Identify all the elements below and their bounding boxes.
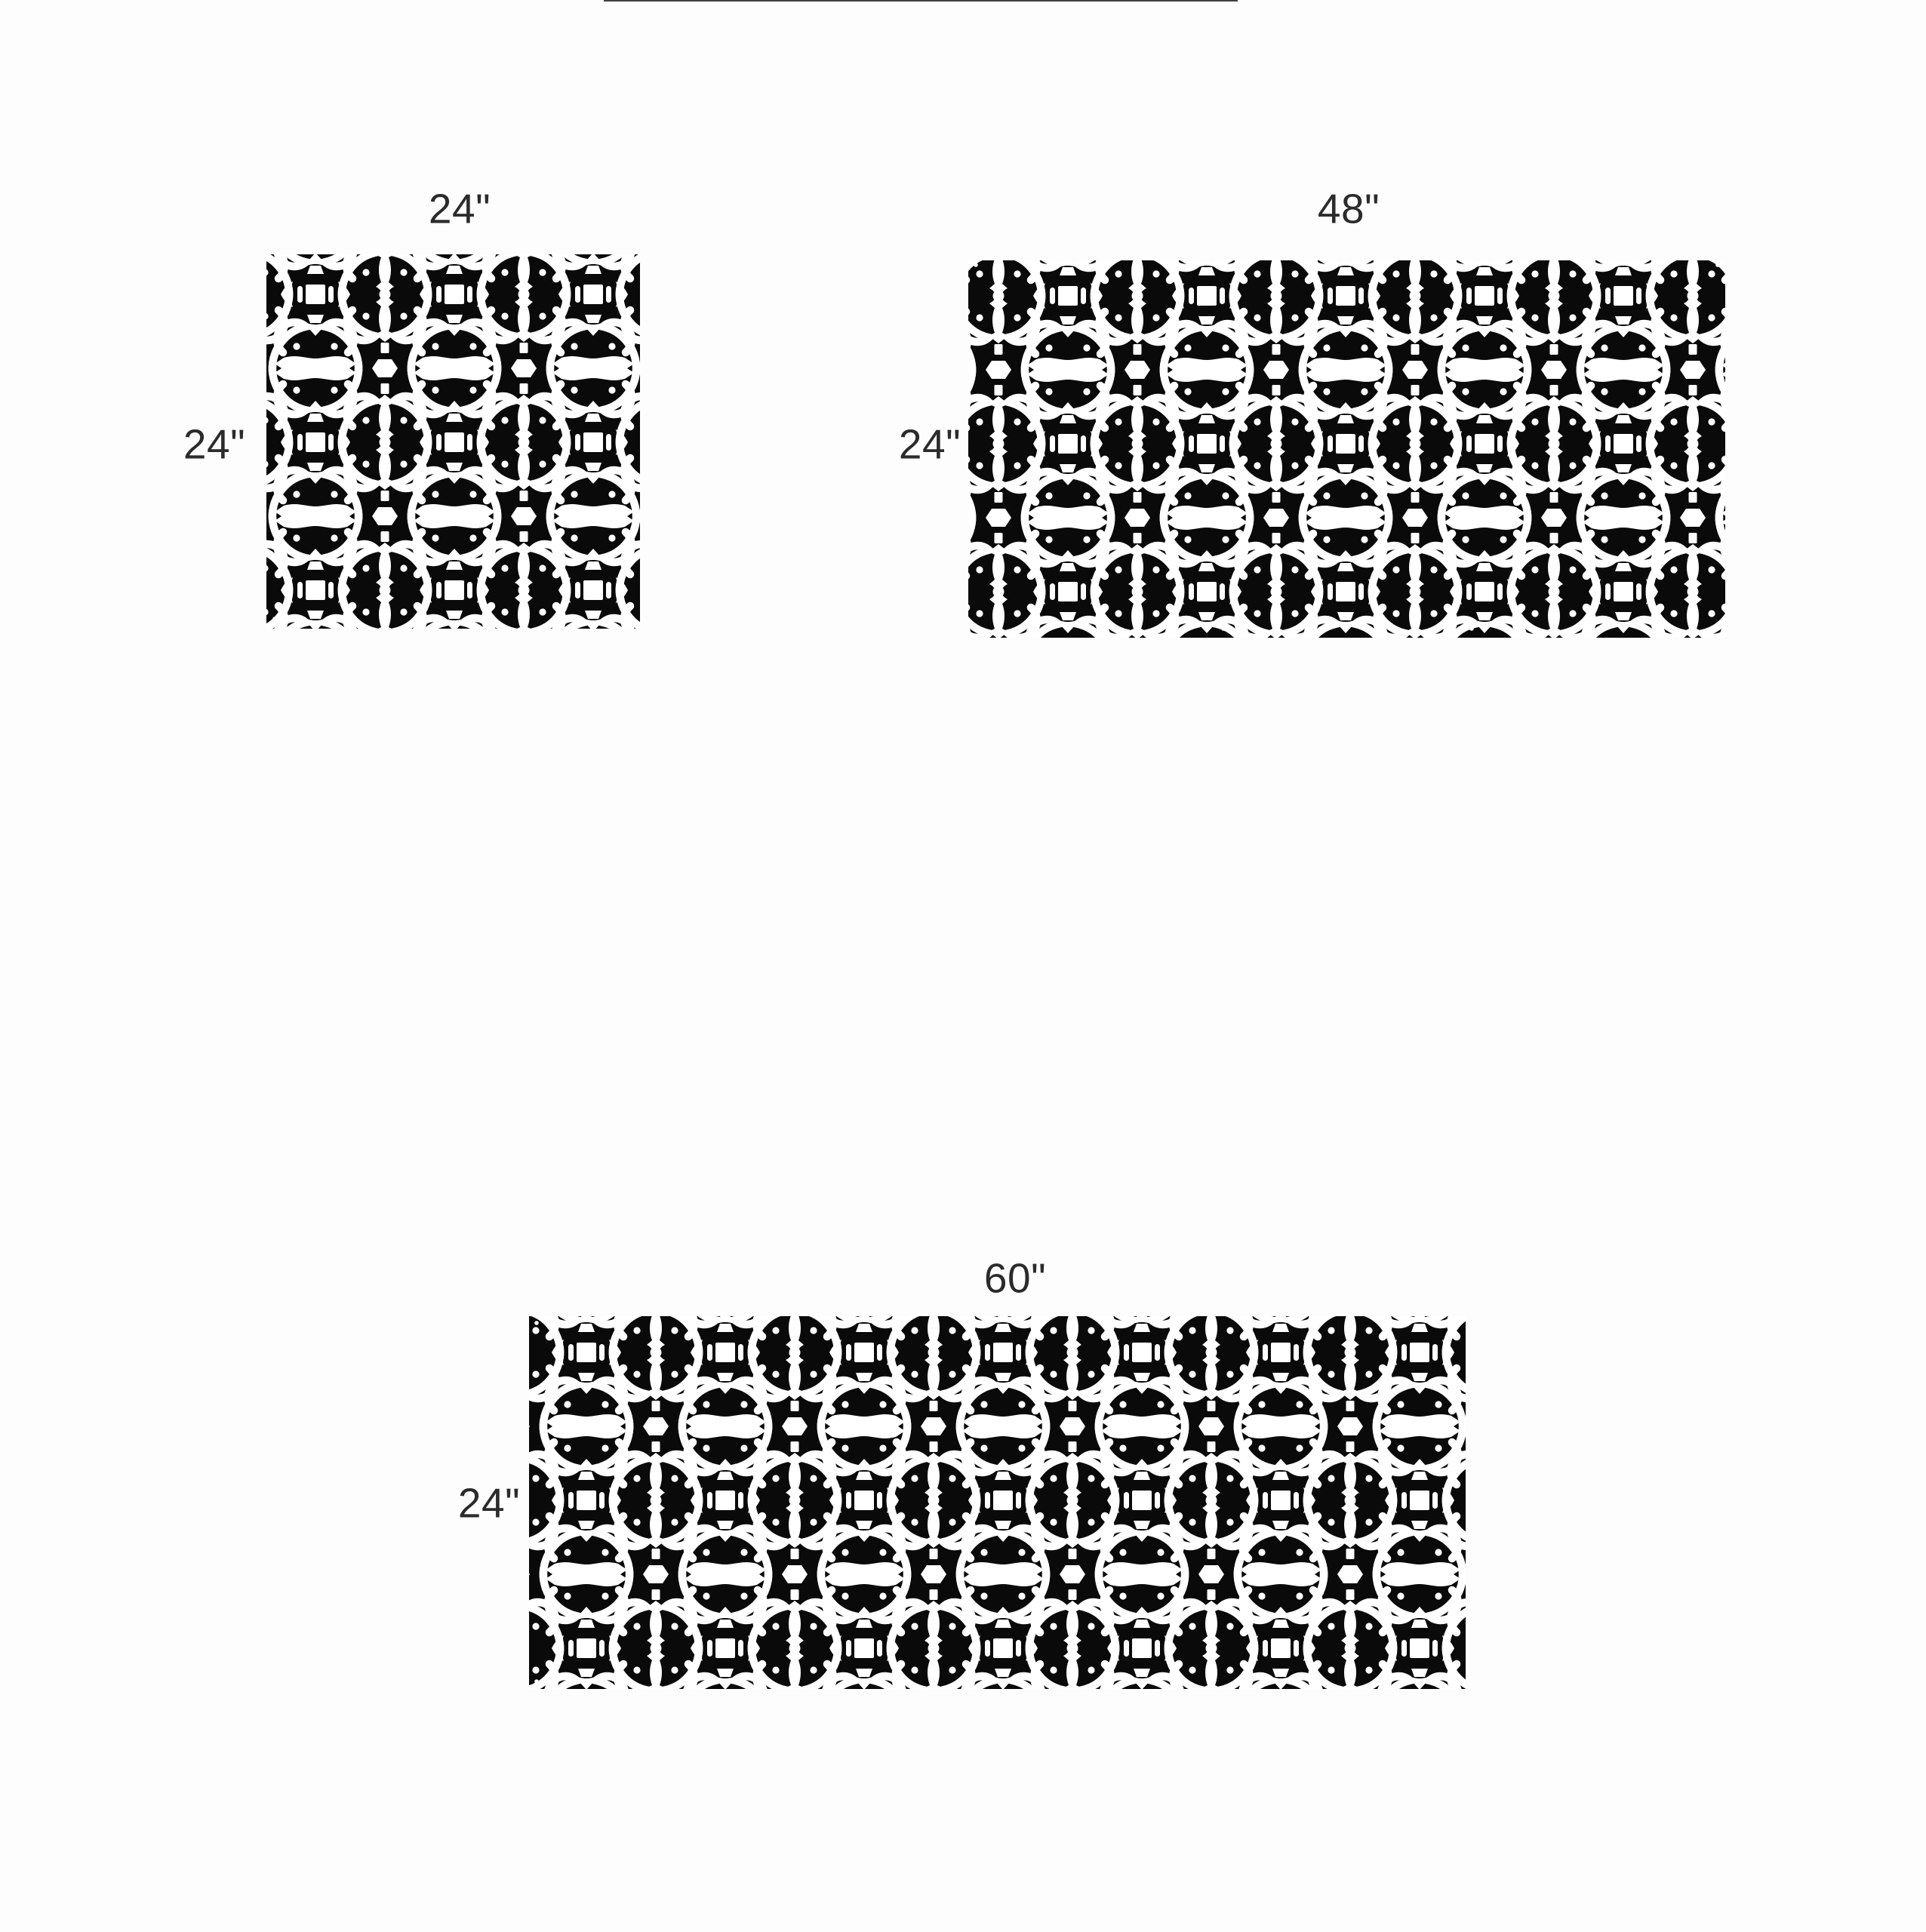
panel-24x24-height-label: 24" (183, 424, 245, 466)
mounting-hole (1158, 1321, 1162, 1325)
mounting-hole (629, 263, 634, 267)
mounting-hole (1469, 626, 1474, 631)
mounting-hole (845, 1679, 850, 1684)
mounting-hole (1469, 263, 1474, 267)
mounting-hole (1221, 626, 1226, 631)
mounting-hole (1456, 1321, 1460, 1325)
mounting-hole (845, 1321, 850, 1325)
panel-48x24-width-label: 48" (1318, 189, 1380, 230)
panel-60x24-width-label: 60" (984, 1258, 1046, 1300)
panel-graphics (0, 0, 1926, 1932)
mounting-hole (1715, 263, 1720, 267)
mounting-hole (1158, 1679, 1162, 1684)
panel-24x24-width-label: 24" (429, 189, 491, 230)
panel-60x24-height-label: 24" (458, 1483, 520, 1524)
panel-60x24 (529, 1316, 1466, 1689)
panel-48x24-height-label: 24" (899, 424, 961, 466)
mounting-hole (534, 1679, 539, 1684)
mounting-hole (534, 1321, 539, 1325)
mounting-hole (1456, 1679, 1460, 1684)
mounting-hole (272, 263, 277, 267)
panel-60x24-lattice (529, 1316, 1466, 1689)
mounting-hole (974, 263, 978, 267)
mounting-hole (1715, 626, 1720, 631)
mounting-hole (629, 618, 634, 623)
mounting-hole (272, 617, 277, 621)
panel-48x24-lattice (968, 260, 1725, 638)
panel-48x24 (968, 260, 1725, 638)
top-edge-line-artifact (604, 0, 1238, 2)
panel-24x24-lattice (266, 254, 640, 629)
panel-24x24 (266, 254, 640, 629)
mounting-hole (974, 626, 978, 631)
product-dimension-diagram: 24" 24" 48" 24" 60" 24" (0, 0, 1926, 1932)
mounting-hole (1221, 263, 1226, 267)
